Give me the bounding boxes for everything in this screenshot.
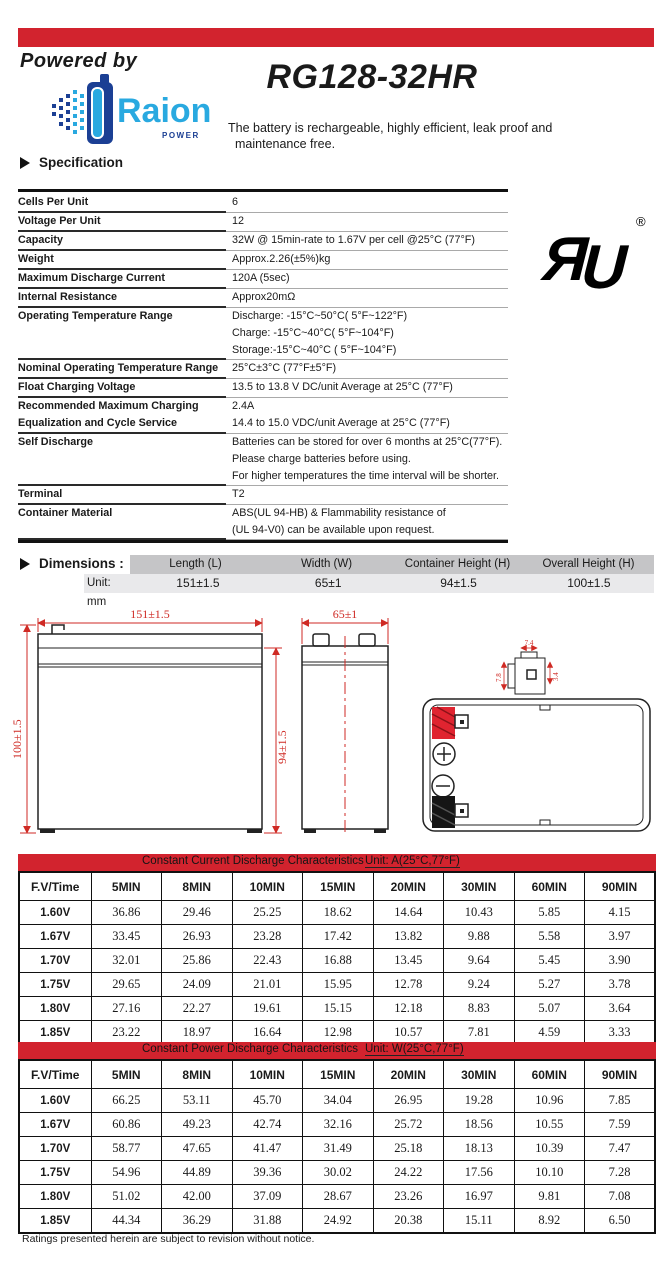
column-header: 30MIN bbox=[444, 1060, 515, 1089]
specification-table: Cells Per Unit6Voltage Per Unit12Capacit… bbox=[18, 189, 508, 543]
value-cell: 7.59 bbox=[585, 1113, 656, 1137]
column-header: 8MIN bbox=[162, 872, 233, 901]
value-cell: 5.58 bbox=[514, 925, 585, 949]
footer-note: Ratings presented herein are subject to … bbox=[22, 1233, 314, 1245]
spec-value-line: 25°C±3°C (77°F±5°F) bbox=[232, 360, 508, 377]
value-cell: 29.46 bbox=[162, 901, 233, 925]
spec-label: Terminal bbox=[18, 486, 226, 505]
value-cell: 39.36 bbox=[232, 1161, 303, 1185]
spec-value: Approx.2.26(±5%)kg bbox=[226, 251, 508, 270]
spec-label-line: Equalization and Cycle Service bbox=[18, 415, 226, 432]
value-cell: 10.39 bbox=[514, 1137, 585, 1161]
value-cell: 25.72 bbox=[373, 1113, 444, 1137]
value-cell: 16.97 bbox=[444, 1185, 515, 1209]
value-cell: 7.47 bbox=[585, 1137, 656, 1161]
value-cell: 25.18 bbox=[373, 1137, 444, 1161]
fv-cell: 1.75V bbox=[19, 973, 91, 997]
specification-heading-label: Specification bbox=[39, 155, 123, 170]
table-row: 1.70V58.7747.6541.4731.4925.1818.1310.39… bbox=[19, 1137, 655, 1161]
value-cell: 12.18 bbox=[373, 997, 444, 1021]
spec-row: Container MaterialABS(UL 94-HB) & Flamma… bbox=[18, 505, 508, 540]
value-cell: 5.27 bbox=[514, 973, 585, 997]
dimensions-unit-label: Unit: mm bbox=[84, 574, 133, 593]
spec-value: 2.4A14.4 to 15.0 VDC/unit Average at 25°… bbox=[226, 398, 508, 434]
value-cell: 36.86 bbox=[91, 901, 162, 925]
value-cell: 31.88 bbox=[232, 1209, 303, 1234]
value-cell: 29.65 bbox=[91, 973, 162, 997]
table-row: 1.85V44.3436.2931.8824.9220.3815.118.926… bbox=[19, 1209, 655, 1234]
value-cell: 18.62 bbox=[303, 901, 374, 925]
column-header: 60MIN bbox=[514, 1060, 585, 1089]
column-header: 8MIN bbox=[162, 1060, 233, 1089]
spec-label: Float Charging Voltage bbox=[18, 379, 226, 398]
value-cell: 13.45 bbox=[373, 949, 444, 973]
value-cell: 24.09 bbox=[162, 973, 233, 997]
column-header: F.V/Time bbox=[19, 872, 91, 901]
table-row: 1.60V36.8629.4625.2518.6214.6410.435.854… bbox=[19, 901, 655, 925]
spec-row: Cells Per Unit6 bbox=[18, 194, 508, 213]
spec-row: Self DischargeBatteries can be stored fo… bbox=[18, 434, 508, 486]
svg-text:POWER: POWER bbox=[162, 131, 200, 140]
value-cell: 15.15 bbox=[303, 997, 374, 1021]
table-row: 1.67V33.4526.9323.2817.4213.829.885.583.… bbox=[19, 925, 655, 949]
spec-label-line: Terminal bbox=[18, 486, 226, 503]
spec-value: 25°C±3°C (77°F±5°F) bbox=[226, 360, 508, 379]
value-cell: 10.55 bbox=[514, 1113, 585, 1137]
spec-value-line: Approx.2.26(±5%)kg bbox=[232, 251, 508, 268]
dimension-column-header: Width (W) bbox=[261, 555, 392, 574]
value-cell: 34.04 bbox=[303, 1089, 374, 1113]
top-view-drawing bbox=[423, 699, 650, 831]
spec-row: Recommended Maximum ChargingEqualization… bbox=[18, 398, 508, 434]
column-header: 15MIN bbox=[303, 872, 374, 901]
spec-row: TerminalT2 bbox=[18, 486, 508, 505]
value-cell: 5.85 bbox=[514, 901, 585, 925]
table-title: Constant Current Discharge Characteristi… bbox=[142, 855, 364, 867]
spec-label-line: Capacity bbox=[18, 232, 226, 249]
table-unit-label: Unit: W(25°C,77°F) bbox=[365, 1043, 464, 1056]
dimension-value: 65±1 bbox=[263, 574, 393, 593]
spec-label: Weight bbox=[18, 251, 226, 270]
value-cell: 10.43 bbox=[444, 901, 515, 925]
value-cell: 28.67 bbox=[303, 1185, 374, 1209]
spec-label: Cells Per Unit bbox=[18, 194, 226, 213]
spec-value-line: Charge: -15°C~40°C( 5°F~104°F) bbox=[232, 325, 508, 342]
column-header: 10MIN bbox=[232, 1060, 303, 1089]
dimension-value: 100±1.5 bbox=[524, 574, 654, 593]
table-row: 1.75V29.6524.0921.0115.9512.789.245.273.… bbox=[19, 973, 655, 997]
spec-label: Maximum Discharge Current bbox=[18, 270, 226, 289]
value-cell: 32.01 bbox=[91, 949, 162, 973]
dimensions-value-row: Unit: mm 151±1.5 65±1 94±1.5 100±1.5 bbox=[84, 574, 654, 593]
fv-cell: 1.85V bbox=[19, 1209, 91, 1234]
dimensions-header-row: Length (L) Width (W) Container Height (H… bbox=[130, 555, 654, 574]
spec-value: 6 bbox=[226, 194, 508, 213]
spec-label-line: Internal Resistance bbox=[18, 289, 226, 306]
product-description: The battery is rechargeable, highly effi… bbox=[228, 120, 552, 152]
dimension-value: 151±1.5 bbox=[133, 574, 263, 593]
value-cell: 44.34 bbox=[91, 1209, 162, 1234]
side-width-dim: 65±1 bbox=[333, 607, 358, 621]
spec-value-line: 13.5 to 13.8 V DC/unit Average at 25°C (… bbox=[232, 379, 508, 396]
spec-row: Float Charging Voltage13.5 to 13.8 V DC/… bbox=[18, 379, 508, 398]
column-header: 20MIN bbox=[373, 872, 444, 901]
value-cell: 41.47 bbox=[232, 1137, 303, 1161]
spec-row: Voltage Per Unit12 bbox=[18, 213, 508, 232]
negative-terminal-icon bbox=[432, 796, 468, 828]
description-line: The battery is rechargeable, highly effi… bbox=[228, 120, 552, 136]
column-header: 90MIN bbox=[585, 872, 656, 901]
column-header: 90MIN bbox=[585, 1060, 656, 1089]
section-triangle-icon bbox=[20, 157, 30, 169]
dimension-column-header: Length (L) bbox=[130, 555, 261, 574]
value-cell: 18.56 bbox=[444, 1113, 515, 1137]
spec-value-line: T2 bbox=[232, 486, 508, 503]
value-cell: 15.95 bbox=[303, 973, 374, 997]
spec-label-line: Weight bbox=[18, 251, 226, 268]
spec-value: 12 bbox=[226, 213, 508, 232]
table-row: 1.60V66.2553.1145.7034.0426.9519.2810.96… bbox=[19, 1089, 655, 1113]
front-width-dim: 151±1.5 bbox=[130, 607, 170, 621]
spec-value-line: Please charge batteries before using. bbox=[232, 451, 508, 468]
value-cell: 27.16 bbox=[91, 997, 162, 1021]
constant-power-table: Constant Power Discharge Characteristics… bbox=[18, 1042, 656, 1234]
spec-label: Container Material bbox=[18, 505, 226, 540]
spec-value-line: (UL 94-V0) can be available upon request… bbox=[232, 522, 508, 539]
value-cell: 3.97 bbox=[585, 925, 656, 949]
value-cell: 58.77 bbox=[91, 1137, 162, 1161]
value-cell: 31.49 bbox=[303, 1137, 374, 1161]
model-title: RG128-32HR bbox=[222, 58, 522, 97]
value-cell: 23.28 bbox=[232, 925, 303, 949]
spec-value: T2 bbox=[226, 486, 508, 505]
spec-value-line: 120A (5sec) bbox=[232, 270, 508, 287]
battery-logo-icon: Raion POWER bbox=[50, 74, 215, 152]
spec-label-line: Operating Temperature Range bbox=[18, 308, 226, 325]
registered-symbol: ® bbox=[636, 214, 646, 229]
column-header: 20MIN bbox=[373, 1060, 444, 1089]
table-title-bar: Constant Power Discharge Characteristics… bbox=[18, 1042, 656, 1059]
front-container-height-dim: 94±1.5 bbox=[275, 730, 289, 764]
value-cell: 17.42 bbox=[303, 925, 374, 949]
front-overall-height-dim: 100±1.5 bbox=[10, 719, 24, 759]
value-cell: 19.61 bbox=[232, 997, 303, 1021]
spec-row: Operating Temperature RangeDischarge: -1… bbox=[18, 308, 508, 360]
table-unit-label: Unit: A(25°C,77°F) bbox=[365, 855, 460, 868]
spec-value-line: Storage:-15°C~40°C ( 5°F~104°F) bbox=[232, 342, 508, 359]
fv-cell: 1.67V bbox=[19, 925, 91, 949]
value-cell: 37.09 bbox=[232, 1185, 303, 1209]
table-title: Constant Power Discharge Characteristics bbox=[142, 1043, 358, 1055]
top-accent-bar bbox=[18, 28, 654, 47]
value-cell: 20.38 bbox=[373, 1209, 444, 1234]
value-cell: 7.85 bbox=[585, 1089, 656, 1113]
front-view-drawing: 151±1.5 100±1.5 94±1.5 bbox=[10, 607, 289, 833]
value-cell: 12.78 bbox=[373, 973, 444, 997]
value-cell: 33.45 bbox=[91, 925, 162, 949]
spec-label: Voltage Per Unit bbox=[18, 213, 226, 232]
spec-value: ABS(UL 94-HB) & Flammability resistance … bbox=[226, 505, 508, 540]
value-cell: 25.25 bbox=[232, 901, 303, 925]
value-cell: 9.24 bbox=[444, 973, 515, 997]
table-row: 1.75V54.9644.8939.3630.0224.2217.5610.10… bbox=[19, 1161, 655, 1185]
spec-label: Internal Resistance bbox=[18, 289, 226, 308]
spec-value: Discharge: -15°C~50°C( 5°F~122°F)Charge:… bbox=[226, 308, 508, 360]
column-header: 5MIN bbox=[91, 1060, 162, 1089]
fv-cell: 1.75V bbox=[19, 1161, 91, 1185]
dimension-value: 94±1.5 bbox=[393, 574, 523, 593]
value-cell: 23.26 bbox=[373, 1185, 444, 1209]
value-cell: 3.90 bbox=[585, 949, 656, 973]
table-row: 1.67V60.8649.2342.7432.1625.7218.5610.55… bbox=[19, 1113, 655, 1137]
value-cell: 25.86 bbox=[162, 949, 233, 973]
terminal-right-dim: 3.4 bbox=[552, 672, 560, 681]
value-cell: 42.74 bbox=[232, 1113, 303, 1137]
value-cell: 5.07 bbox=[514, 997, 585, 1021]
fv-cell: 1.80V bbox=[19, 997, 91, 1021]
spec-value-line: Batteries can be stored for over 6 month… bbox=[232, 434, 508, 451]
constant-current-table: Constant Current Discharge Characteristi… bbox=[18, 854, 656, 1046]
column-header: 60MIN bbox=[514, 872, 585, 901]
value-cell: 22.43 bbox=[232, 949, 303, 973]
column-header: 15MIN bbox=[303, 1060, 374, 1089]
value-cell: 9.81 bbox=[514, 1185, 585, 1209]
spec-label-line: Container Material bbox=[18, 505, 226, 522]
value-cell: 26.93 bbox=[162, 925, 233, 949]
value-cell: 47.65 bbox=[162, 1137, 233, 1161]
spec-label: Recommended Maximum ChargingEqualization… bbox=[18, 398, 226, 434]
svg-text:Raion: Raion bbox=[117, 92, 211, 130]
value-cell: 22.27 bbox=[162, 997, 233, 1021]
table-row: 1.70V32.0125.8622.4316.8813.459.645.453.… bbox=[19, 949, 655, 973]
spec-value-line: 32W @ 15min-rate to 1.67V per cell @25°C… bbox=[232, 232, 508, 249]
side-view-drawing: 65±1 bbox=[302, 607, 388, 833]
dimension-column-header: Overall Height (H) bbox=[523, 555, 654, 574]
value-cell: 10.10 bbox=[514, 1161, 585, 1185]
value-cell: 21.01 bbox=[232, 973, 303, 997]
value-cell: 7.08 bbox=[585, 1185, 656, 1209]
table-row: 1.80V51.0242.0037.0928.6723.2616.979.817… bbox=[19, 1185, 655, 1209]
description-line: maintenance free. bbox=[235, 136, 552, 152]
spec-row: Capacity32W @ 15min-rate to 1.67V per ce… bbox=[18, 232, 508, 251]
ul-recognized-mark-icon: R U ® bbox=[540, 208, 650, 309]
section-triangle-icon bbox=[20, 558, 30, 570]
value-cell: 16.88 bbox=[303, 949, 374, 973]
spec-label-line: Maximum Discharge Current bbox=[18, 270, 226, 287]
value-cell: 42.00 bbox=[162, 1185, 233, 1209]
dimensions-heading-label: Dimensions : bbox=[39, 556, 124, 571]
dimensions-heading: Dimensions : bbox=[20, 556, 124, 571]
value-cell: 26.95 bbox=[373, 1089, 444, 1113]
value-cell: 15.11 bbox=[444, 1209, 515, 1234]
value-cell: 51.02 bbox=[91, 1185, 162, 1209]
spec-value-line: 14.4 to 15.0 VDC/unit Average at 25°C (7… bbox=[232, 415, 508, 432]
spec-row: WeightApprox.2.26(±5%)kg bbox=[18, 251, 508, 270]
spec-label: Operating Temperature Range bbox=[18, 308, 226, 360]
table-header-row: F.V/Time5MIN8MIN10MIN15MIN20MIN30MIN60MI… bbox=[19, 1060, 655, 1089]
spec-value: 13.5 to 13.8 V DC/unit Average at 25°C (… bbox=[226, 379, 508, 398]
value-cell: 19.28 bbox=[444, 1089, 515, 1113]
table-row: 1.80V27.1622.2719.6115.1512.188.835.073.… bbox=[19, 997, 655, 1021]
spec-value-line: 2.4A bbox=[232, 398, 508, 415]
value-cell: 32.16 bbox=[303, 1113, 374, 1137]
spec-value-line: For higher temperatures the time interva… bbox=[232, 468, 508, 485]
column-header: F.V/Time bbox=[19, 1060, 91, 1089]
fv-cell: 1.60V bbox=[19, 901, 91, 925]
terminal-top-dim: 7.4 bbox=[525, 639, 534, 647]
value-cell: 54.96 bbox=[91, 1161, 162, 1185]
value-cell: 17.56 bbox=[444, 1161, 515, 1185]
fv-cell: 1.60V bbox=[19, 1089, 91, 1113]
raion-power-logo: Raion POWER bbox=[50, 74, 215, 157]
spec-label: Nominal Operating Temperature Range bbox=[18, 360, 226, 379]
spec-label-line: Nominal Operating Temperature Range bbox=[18, 360, 226, 377]
discharge-table: F.V/Time5MIN8MIN10MIN15MIN20MIN30MIN60MI… bbox=[18, 871, 656, 1046]
value-cell: 49.23 bbox=[162, 1113, 233, 1137]
value-cell: 3.78 bbox=[585, 973, 656, 997]
value-cell: 18.13 bbox=[444, 1137, 515, 1161]
dimension-column-header: Container Height (H) bbox=[392, 555, 523, 574]
table-title-bar: Constant Current Discharge Characteristi… bbox=[18, 854, 656, 871]
column-header: 30MIN bbox=[444, 872, 515, 901]
spec-row: Internal ResistanceApprox20mΩ bbox=[18, 289, 508, 308]
spec-row: Maximum Discharge Current120A (5sec) bbox=[18, 270, 508, 289]
value-cell: 8.92 bbox=[514, 1209, 585, 1234]
datasheet-page: Powered by Raion PO bbox=[0, 0, 672, 1280]
value-cell: 10.96 bbox=[514, 1089, 585, 1113]
fv-cell: 1.67V bbox=[19, 1113, 91, 1137]
spec-value: 32W @ 15min-rate to 1.67V per cell @25°C… bbox=[226, 232, 508, 251]
positive-terminal-icon bbox=[432, 707, 468, 739]
spec-value: Approx20mΩ bbox=[226, 289, 508, 308]
value-cell: 44.89 bbox=[162, 1161, 233, 1185]
value-cell: 66.25 bbox=[91, 1089, 162, 1113]
spec-value: 120A (5sec) bbox=[226, 270, 508, 289]
fv-cell: 1.70V bbox=[19, 1137, 91, 1161]
value-cell: 5.45 bbox=[514, 949, 585, 973]
value-cell: 60.86 bbox=[91, 1113, 162, 1137]
table-header-row: F.V/Time5MIN8MIN10MIN15MIN20MIN30MIN60MI… bbox=[19, 872, 655, 901]
value-cell: 3.64 bbox=[585, 997, 656, 1021]
fv-cell: 1.80V bbox=[19, 1185, 91, 1209]
value-cell: 13.82 bbox=[373, 925, 444, 949]
value-cell: 14.64 bbox=[373, 901, 444, 925]
value-cell: 6.50 bbox=[585, 1209, 656, 1234]
spec-label: Capacity bbox=[18, 232, 226, 251]
spec-value-line: 12 bbox=[232, 213, 508, 230]
value-cell: 8.83 bbox=[444, 997, 515, 1021]
value-cell: 24.92 bbox=[303, 1209, 374, 1234]
spec-label-line: Float Charging Voltage bbox=[18, 379, 226, 396]
spec-label: Self Discharge bbox=[18, 434, 226, 486]
terminal-detail-drawing: 7.4 7.8 3.4 bbox=[495, 639, 560, 694]
spec-value-line: 6 bbox=[232, 194, 508, 211]
spec-label-line: Cells Per Unit bbox=[18, 194, 226, 211]
technical-drawings: 151±1.5 100±1.5 94±1.5 bbox=[0, 604, 672, 857]
column-header: 10MIN bbox=[232, 872, 303, 901]
powered-by-label: Powered by bbox=[20, 50, 137, 73]
value-cell: 9.64 bbox=[444, 949, 515, 973]
column-header: 5MIN bbox=[91, 872, 162, 901]
value-cell: 24.22 bbox=[373, 1161, 444, 1185]
value-cell: 30.02 bbox=[303, 1161, 374, 1185]
spec-row: Nominal Operating Temperature Range25°C±… bbox=[18, 360, 508, 379]
spec-label-line: Voltage Per Unit bbox=[18, 213, 226, 230]
spec-value-line: Approx20mΩ bbox=[232, 289, 508, 306]
fv-cell: 1.70V bbox=[19, 949, 91, 973]
terminal-left-dim: 7.8 bbox=[495, 673, 503, 682]
spec-value-line: Discharge: -15°C~50°C( 5°F~122°F) bbox=[232, 308, 508, 325]
value-cell: 7.28 bbox=[585, 1161, 656, 1185]
spec-label-line: Recommended Maximum Charging bbox=[18, 398, 226, 415]
value-cell: 45.70 bbox=[232, 1089, 303, 1113]
spec-value-line: ABS(UL 94-HB) & Flammability resistance … bbox=[232, 505, 508, 522]
discharge-table: F.V/Time5MIN8MIN10MIN15MIN20MIN30MIN60MI… bbox=[18, 1059, 656, 1234]
spec-value: Batteries can be stored for over 6 month… bbox=[226, 434, 508, 486]
spec-label-line: Self Discharge bbox=[18, 434, 226, 451]
value-cell: 9.88 bbox=[444, 925, 515, 949]
value-cell: 36.29 bbox=[162, 1209, 233, 1234]
value-cell: 4.15 bbox=[585, 901, 656, 925]
value-cell: 53.11 bbox=[162, 1089, 233, 1113]
specification-heading: Specification bbox=[20, 155, 123, 170]
